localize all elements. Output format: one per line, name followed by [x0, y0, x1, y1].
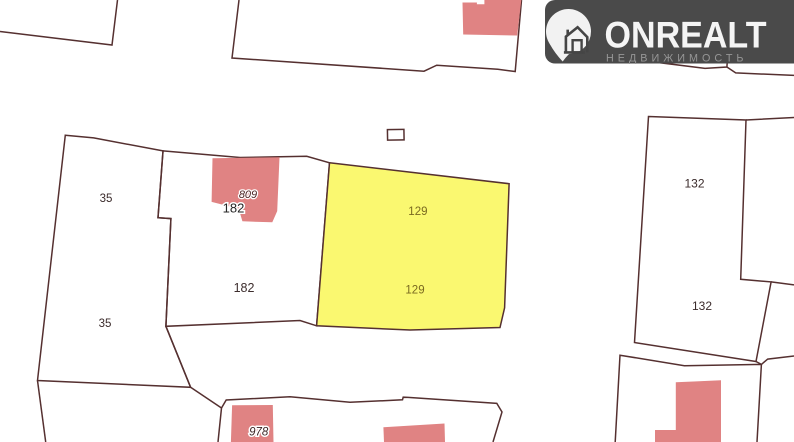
svg-text:129: 129 [408, 206, 427, 218]
svg-text:132: 132 [692, 299, 712, 313]
svg-text:35: 35 [100, 193, 113, 205]
svg-text:35: 35 [99, 318, 112, 330]
svg-text:182: 182 [223, 201, 245, 216]
svg-text:ONREALT: ONREALT [605, 15, 767, 56]
svg-text:978: 978 [249, 427, 269, 439]
svg-text:132: 132 [684, 177, 704, 191]
svg-text:НЕДВИЖИМОСТЬ: НЕДВИЖИМОСТЬ [606, 53, 748, 65]
svg-text:182: 182 [234, 281, 255, 295]
svg-text:129: 129 [405, 285, 424, 297]
svg-text:809: 809 [239, 189, 257, 201]
